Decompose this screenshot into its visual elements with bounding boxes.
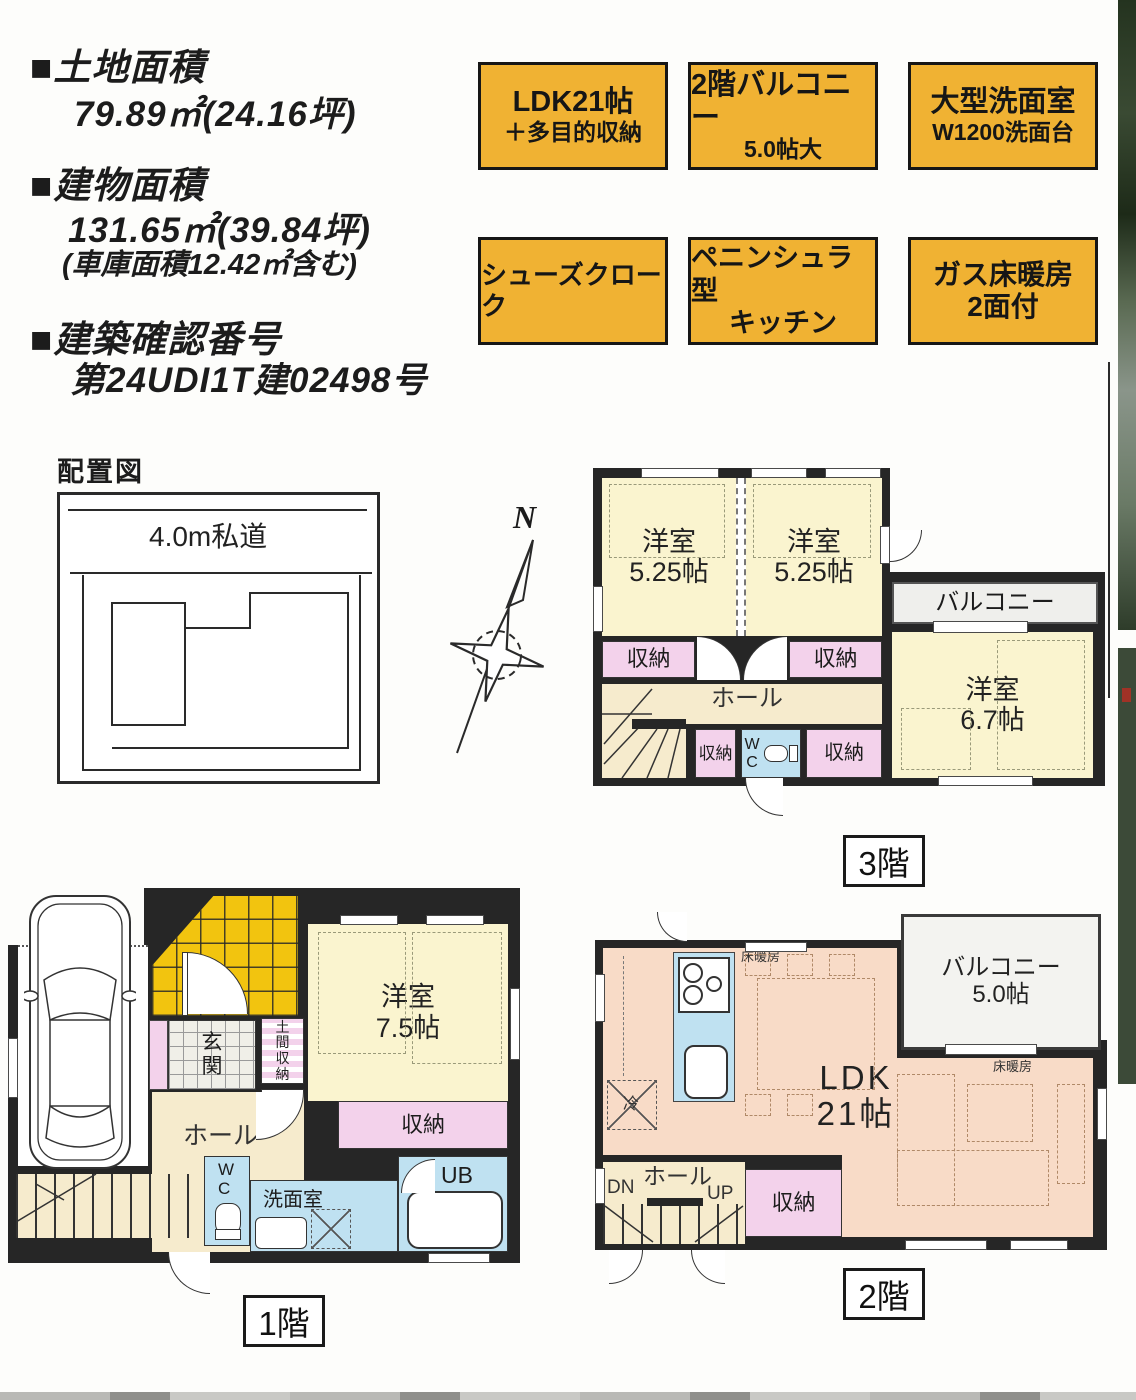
room-storage-2f: 収納 <box>745 1169 842 1237</box>
hall-label: ホール <box>643 1164 712 1189</box>
toilet-icon <box>764 745 788 762</box>
floor-tag-3f: 3階 <box>843 835 925 887</box>
scan-line <box>1108 362 1110 698</box>
feature-badge-shoes: シューズクローク <box>478 237 668 345</box>
window <box>595 974 605 1022</box>
confirmation-number-heading: ■建築確認番号 <box>30 320 281 361</box>
hall-dn-label: DN <box>607 1178 634 1199</box>
furniture-desk <box>901 708 971 770</box>
room-ub-1f: UB <box>398 1156 508 1252</box>
window <box>428 1253 490 1263</box>
hall-up-label: UP <box>707 1184 733 1205</box>
badge-line1: ペニンシュラ型 <box>691 242 875 307</box>
furniture-chair <box>787 954 813 976</box>
window <box>340 915 398 925</box>
hall-label: ホール <box>711 686 783 712</box>
badge-line1: LDK21帖 <box>513 86 634 119</box>
feature-badge-balcony: 2階バルコニー 5.0帖大 <box>688 62 878 170</box>
door-arc <box>657 912 687 942</box>
land-area-heading: ■土地面積 <box>30 48 205 89</box>
window <box>510 988 520 1060</box>
window <box>751 468 807 478</box>
room-label: W C <box>218 1161 234 1198</box>
floor-plan-2f: バルコニー 5.0帖 LDK 21帖 床暖房 床暖房 冷 ホール DN UP <box>595 912 1107 1258</box>
counter-dashed <box>623 956 624 1076</box>
washer-icon <box>311 1209 351 1249</box>
room-label: 収納 <box>626 647 670 672</box>
room-ldk-2f <box>842 1155 897 1237</box>
furniture-bed <box>997 640 1085 770</box>
stairs-lines <box>602 684 686 778</box>
feature-badge-floorheat: ガス床暖房 2面付 <box>908 237 1098 345</box>
room-wc-3f: W C <box>741 729 801 778</box>
room-label: バルコニー 5.0帖 <box>941 955 1061 1009</box>
badge-line2: ＋多目的収納 <box>504 119 642 147</box>
compass-rose <box>435 495 585 765</box>
room-wc-1f: W C <box>204 1156 250 1246</box>
front-door-panel <box>182 952 188 1016</box>
furniture-chair <box>745 954 771 976</box>
door-arc <box>609 1250 643 1284</box>
hall-label: ホール <box>183 1123 258 1151</box>
door-arc <box>745 778 783 816</box>
floor-heating-label: 床暖房 <box>993 1060 1032 1074</box>
bathtub-icon <box>407 1191 503 1249</box>
window <box>933 621 1028 633</box>
furniture-tv-board <box>1057 1084 1085 1184</box>
window <box>905 1240 987 1250</box>
stairs-2f <box>603 1204 745 1244</box>
room-balcony-2f: バルコニー 5.0帖 <box>901 914 1101 1050</box>
garage-area-note: (車庫面積12.42㎡含む) <box>62 250 357 282</box>
floor-plan-3f: バルコニー 洋室 5.25帖 洋室 5.25帖 洋室 6.7帖 収納 収納 DN… <box>593 468 1105 798</box>
furniture-chair <box>829 954 855 976</box>
room-label: 収納 <box>401 1113 445 1138</box>
stove-icon <box>678 957 738 1015</box>
feature-badge-ldk: LDK21帖 ＋多目的収納 <box>478 62 668 170</box>
furniture-chair <box>787 1094 813 1116</box>
photo-edge-strip <box>1118 648 1136 1084</box>
room-label: 収納 <box>813 647 857 672</box>
badge-line1: シューズクローク <box>481 260 665 322</box>
furniture-bed <box>318 932 406 1054</box>
window <box>945 1044 1037 1055</box>
room-storage-3f: 収納 <box>806 729 882 778</box>
stairs-3f <box>602 684 686 778</box>
feature-badge-washroom: 大型洗面室 W1200洗面台 <box>908 62 1098 170</box>
building-area-value: 131.65㎡(39.84坪) <box>68 212 371 251</box>
room-label: バルコニー <box>935 590 1055 617</box>
badge-line1: ガス床暖房 <box>933 259 1073 291</box>
road-label: 4.0m私道 <box>149 522 267 553</box>
floor-tag-label: 1階 <box>258 1297 309 1345</box>
furniture-bed <box>609 484 725 558</box>
furniture-sofa <box>897 1150 1049 1206</box>
door-arc <box>401 1159 435 1193</box>
badge-line2: 2面付 <box>967 291 1039 323</box>
site-plan: 4.0m私道 <box>57 492 380 784</box>
sink-icon <box>684 1045 728 1099</box>
window <box>1097 1088 1107 1140</box>
window <box>595 1168 605 1204</box>
site-plan-title: 配置図 <box>57 458 144 488</box>
badge-line2: 5.0帖大 <box>744 136 822 164</box>
room-label: 収納 <box>699 744 733 763</box>
floor-tag-label: 2階 <box>858 1270 909 1318</box>
stairs-lines <box>16 1174 194 1238</box>
door-arc <box>168 1252 210 1294</box>
photo-edge-strip <box>1118 0 1136 630</box>
room-label: UB <box>441 1163 473 1188</box>
stairs-1f <box>16 1174 194 1238</box>
room-storage-3f: 収納 <box>789 641 882 678</box>
window <box>938 776 1033 786</box>
fridge-label: 冷 <box>623 1096 639 1114</box>
room-doma-storage-1f: 土 間 収 納 <box>261 1018 304 1084</box>
room-storage-1f: 収納 <box>338 1101 508 1149</box>
room-senmen-1f: 洗面室 <box>250 1180 398 1252</box>
room-label: 土 間 収 納 <box>276 1020 290 1083</box>
toilet-tank-icon <box>789 745 798 762</box>
kitchen-counter-2f <box>673 952 735 1102</box>
floor-plan-1f: 玄 関 土 間 収 納 収納 ホール UP W C 洗面室 UB 洋室 7.5帖… <box>8 888 520 1288</box>
partition-dashed <box>736 478 746 636</box>
floor-tag-2f: 2階 <box>843 1268 925 1320</box>
badge-line2: キッチン <box>729 307 837 339</box>
building-area-heading: ■建物面積 <box>30 166 205 207</box>
furniture-bed <box>412 932 502 1064</box>
room-label: W C <box>744 736 759 772</box>
badge-line1: 2階バルコニー <box>691 69 875 136</box>
badge-line1: 大型洗面室 <box>930 86 1075 119</box>
floor-tag-label: 3階 <box>858 837 909 885</box>
window <box>593 586 603 632</box>
sink-counter-icon <box>255 1217 307 1249</box>
window <box>8 1038 18 1098</box>
land-area-value: 79.89㎡(24.16坪) <box>74 96 356 135</box>
compass-north-label: N <box>513 500 536 535</box>
door-arc <box>890 530 922 562</box>
furniture-table <box>967 1084 1033 1142</box>
door-arc <box>691 1250 725 1284</box>
window <box>880 526 890 564</box>
window <box>825 468 881 478</box>
room-label: 洗面室 <box>263 1189 323 1211</box>
room-label: 収納 <box>771 1191 815 1216</box>
window <box>1010 1240 1068 1250</box>
furniture-dining-table <box>757 978 875 1090</box>
compass: N <box>435 495 585 765</box>
window <box>745 942 807 952</box>
stair-landing <box>647 1198 703 1206</box>
floor-tag-1f: 1階 <box>243 1295 325 1347</box>
entry-closet <box>149 1020 168 1090</box>
flyer-page: { "info": { "land_heading": "■土地面積", "la… <box>0 0 1136 1400</box>
room-balcony-3f: バルコニー <box>892 582 1098 624</box>
photo-edge-mark <box>1122 688 1131 702</box>
room-genkan-1f: 玄 関 <box>168 1020 256 1090</box>
car-top-view <box>24 890 136 1174</box>
window <box>426 915 484 925</box>
window <box>641 468 719 478</box>
confirmation-number-value: 第24UDI1T建02498号 <box>70 362 427 401</box>
toilet-tank-icon <box>215 1229 241 1240</box>
furniture-chair <box>745 1094 771 1116</box>
furniture-bed <box>753 484 871 558</box>
feature-badge-kitchen: ペニンシュラ型 キッチン <box>688 237 878 345</box>
room-label: 玄 関 <box>202 1031 223 1078</box>
stairs-lines <box>603 1204 745 1244</box>
scan-bottom-edge <box>0 1392 1136 1400</box>
badge-line2: W1200洗面台 <box>932 119 1074 147</box>
room-storage-3f: 収納 <box>602 641 695 678</box>
room-label: 収納 <box>824 742 864 764</box>
room-storage-3f: 収納 <box>695 729 736 778</box>
